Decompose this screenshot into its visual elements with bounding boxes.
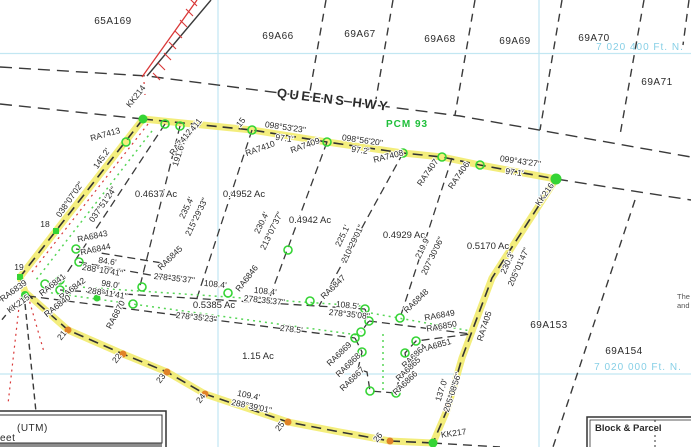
block-divider-6 xyxy=(683,0,689,45)
tick-label-19: 19 xyxy=(14,262,24,272)
dim-u1-brg: 278°35'37" xyxy=(153,271,195,285)
northing-label-bottom: 7 020 000 Ft. N. xyxy=(594,362,682,373)
dim-hwy2-len: 97.2' xyxy=(351,144,371,156)
vertex-marker xyxy=(285,419,292,426)
tick-labels: 15 18 19 21 22 23 24 25 26 xyxy=(14,115,384,444)
area-label-lot1: 0.4637 Ac xyxy=(135,189,178,200)
monument-label-kk217: KK217 xyxy=(440,426,467,439)
monument-label-kk216: KK216 xyxy=(533,181,556,208)
dim-s1-brg: 288°10'41" xyxy=(81,262,123,278)
road-name-label: QUEENS HWY xyxy=(276,85,391,114)
pin-label-ra7410: RA7410 xyxy=(244,138,277,158)
vertex-marker xyxy=(396,314,404,322)
block-label-69A154: 69A154 xyxy=(605,346,642,357)
vertex-marker xyxy=(284,246,292,254)
utm-scale-box: (UTM) eet xyxy=(0,411,166,447)
dim-l2-len: 278.5' xyxy=(279,323,303,335)
area-label-lot5: 0.5170 Ac xyxy=(467,241,510,252)
hwy-south-row-line-west xyxy=(0,104,143,119)
vertex-marker xyxy=(138,283,146,291)
pin-label-ra6844: RA6844 xyxy=(79,241,111,257)
block-label-69A69: 69A69 xyxy=(499,36,530,47)
boundary-north-highlight xyxy=(143,119,556,179)
block-line-solid xyxy=(147,0,211,76)
parcel-map-svg[interactable]: 65A169 69A66 69A67 69A68 69A69 69A70 69A… xyxy=(0,0,691,447)
clipped-note-text: The and xyxy=(677,292,690,310)
pin-label-ra7407: RA7407 xyxy=(415,157,441,188)
vertex-marker xyxy=(224,289,232,297)
feet-label-clipped: eet xyxy=(0,433,15,444)
plan-ref-label: PCM 93 xyxy=(386,119,428,130)
dim-hwy3-len: 97.1' xyxy=(505,166,525,178)
pin-label-ra7413: RA7413 xyxy=(89,125,122,143)
scale-bar-strip xyxy=(0,444,162,447)
area-label-large: 1.15 Ac xyxy=(242,351,274,362)
pin-label-ra6845: RA6845 xyxy=(155,243,184,272)
block-label-69A71: 69A71 xyxy=(641,77,672,88)
tick-18-marker xyxy=(53,228,59,234)
area-label-lot3: 0.4942 Ac xyxy=(289,215,332,226)
dim-l1-brg: 278°35'23" xyxy=(175,310,217,324)
dim-hwy1-len: 97.1' xyxy=(275,132,295,144)
hwy-south-row-line-east xyxy=(556,179,691,200)
block-parcel-label: Block & Parcel xyxy=(595,423,662,434)
area-label-lot2: 0.4952 Ac xyxy=(223,189,266,200)
red-cross-ticks xyxy=(153,0,197,80)
vertex-marker xyxy=(306,297,314,305)
block-divider-1 xyxy=(309,0,326,97)
block-divider-5 xyxy=(620,0,644,135)
utm-label: (UTM) xyxy=(17,423,48,434)
block-label-69A153: 69A153 xyxy=(530,320,567,331)
vertex-marker xyxy=(164,369,171,376)
pin-label-ra6870: RA6870 xyxy=(104,298,127,330)
block-divider-4 xyxy=(540,0,562,130)
tick-label-18: 18 xyxy=(40,219,50,229)
parcel-map-viewport[interactable]: 65A169 69A66 69A67 69A68 69A69 69A70 69A… xyxy=(0,0,691,447)
block-divider-2 xyxy=(375,0,393,105)
clipped-text-line1: The xyxy=(677,292,690,301)
block-label-69A66: 69A66 xyxy=(262,31,293,42)
vertex-marker xyxy=(387,438,394,445)
clipped-text-line2: and xyxy=(677,301,690,310)
grid-labels: 7 020 400 Ft. N. 7 020 000 Ft. N. xyxy=(594,42,684,373)
tie-southwest xyxy=(24,294,36,412)
block-divider-3 xyxy=(455,0,475,115)
area-label-lot4: 0.4929 Ac xyxy=(383,230,426,241)
pin-label-ra6847: RA6847 xyxy=(318,272,347,301)
block-label-69A68: 69A68 xyxy=(424,34,455,45)
monument-kk216-marker xyxy=(551,174,562,185)
monument-label-kk214: KK214 xyxy=(124,83,148,109)
monument-kk214-marker xyxy=(139,115,148,124)
block-label-69A67: 69A67 xyxy=(344,29,375,40)
tie-past-kk217 xyxy=(433,443,500,447)
northing-label-top: 7 020 400 Ft. N. xyxy=(596,42,684,53)
green-dotted-west xyxy=(36,131,152,280)
block-labels: 65A169 69A66 69A67 69A68 69A69 69A70 69A… xyxy=(94,16,672,357)
dim-u2-brg: 278°35'37" xyxy=(243,293,285,307)
block-parcel-box: Block & Parcel xyxy=(587,417,691,447)
area-label-strip: 0.5385 Ac xyxy=(193,300,236,311)
block-label-65A169: 65A169 xyxy=(94,16,131,27)
dim-u1-len: 108.4' xyxy=(203,278,227,290)
